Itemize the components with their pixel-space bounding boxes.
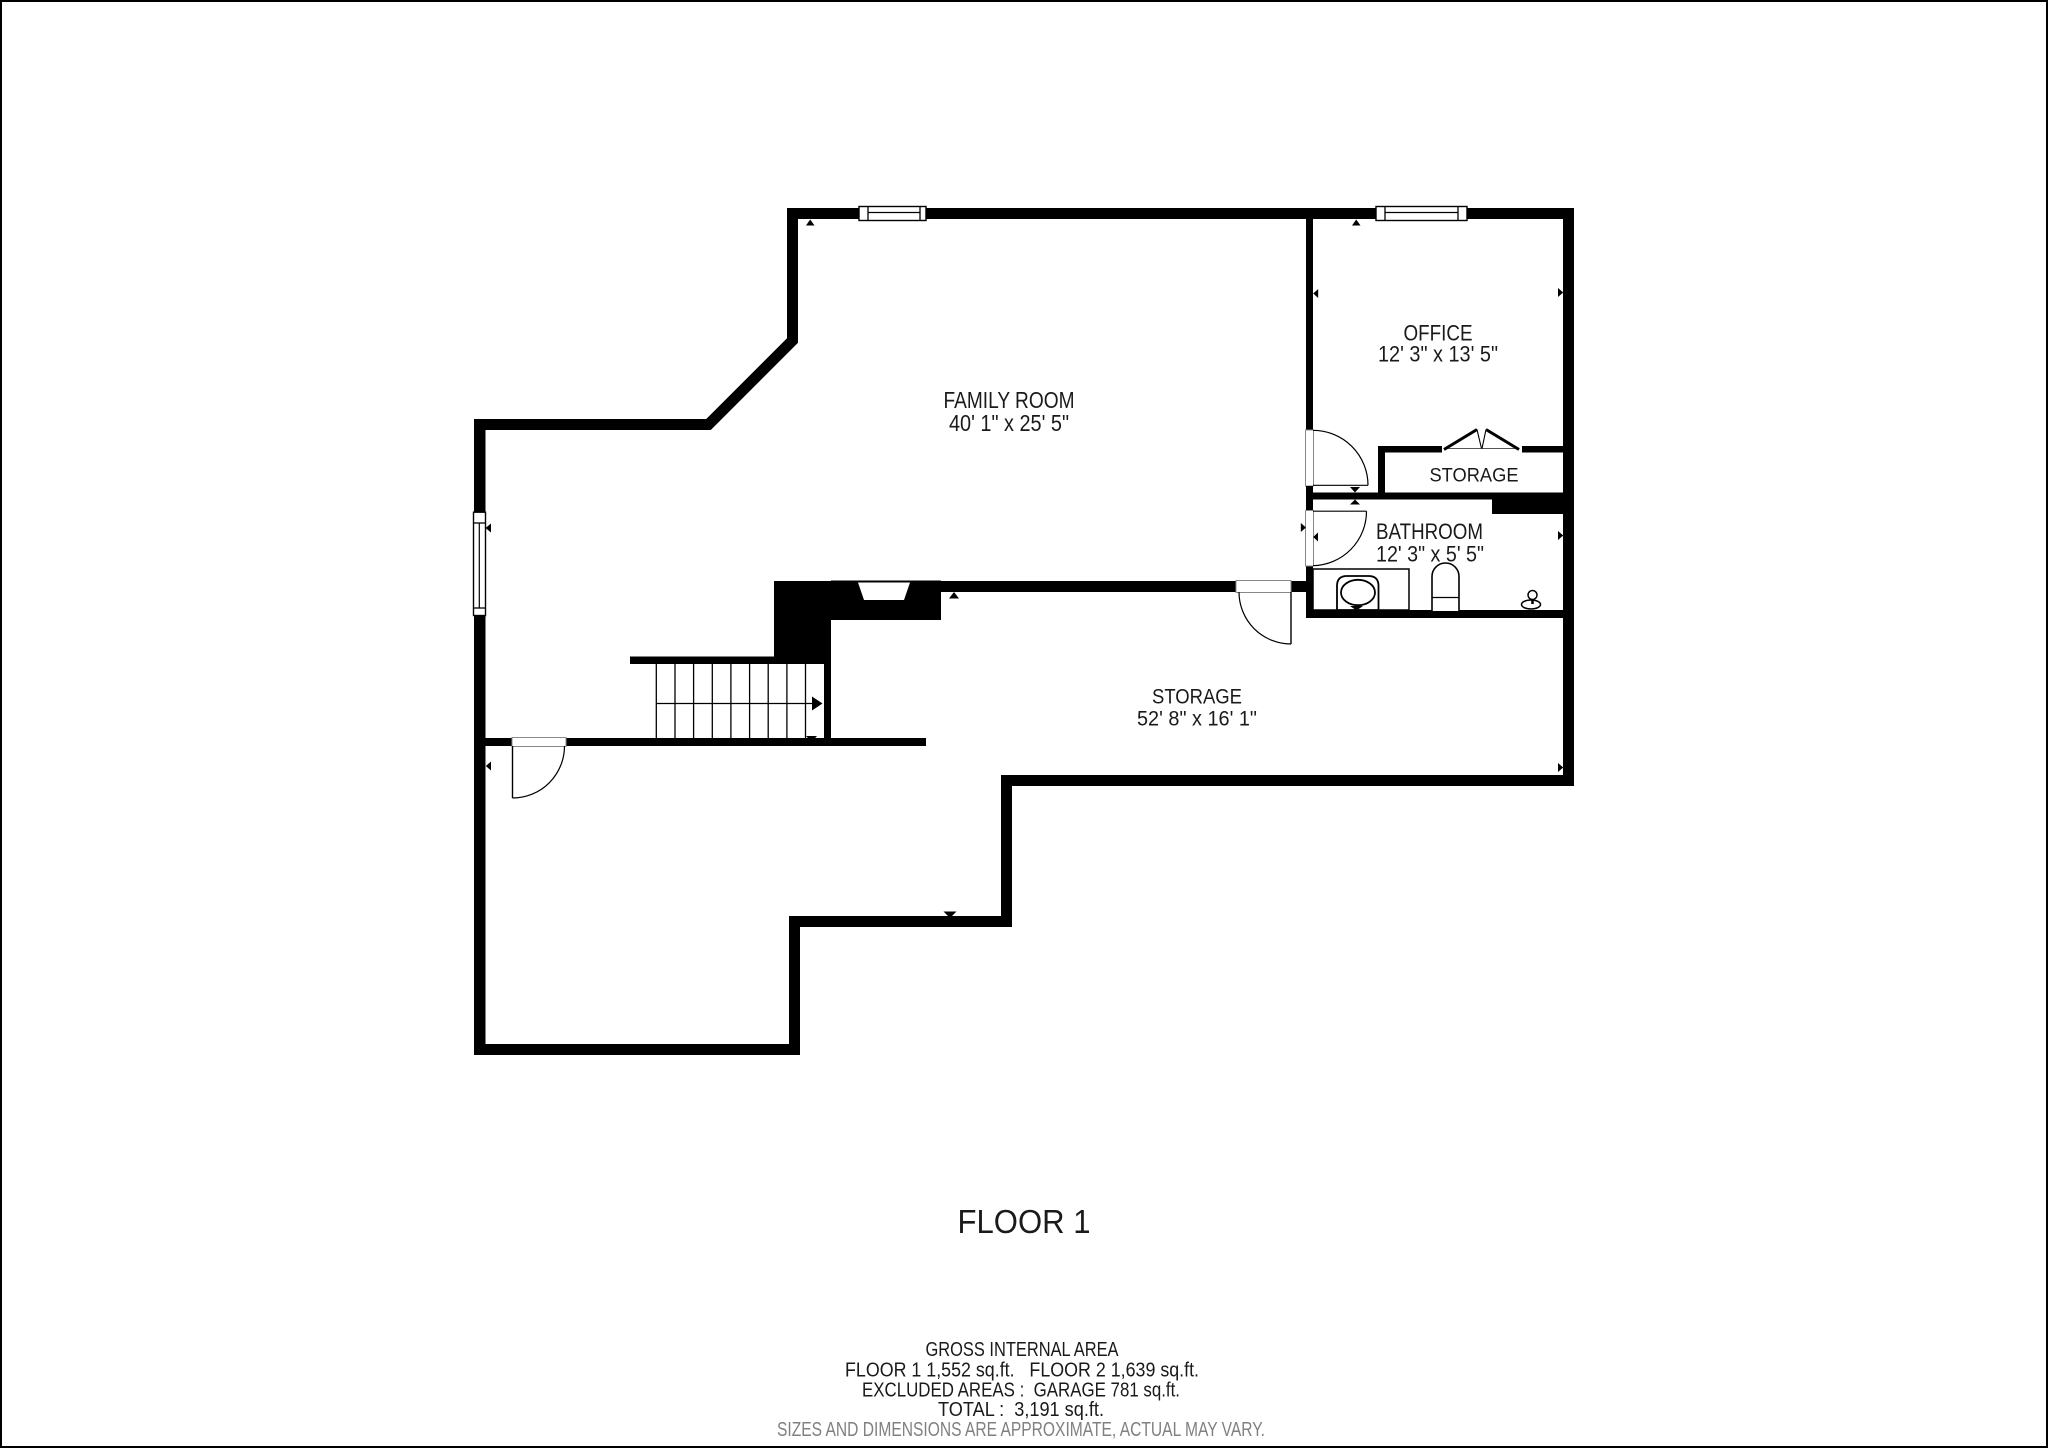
svg-text:40' 1" x 25' 5": 40' 1" x 25' 5" bbox=[949, 410, 1069, 436]
svg-text:STORAGE: STORAGE bbox=[1430, 466, 1519, 487]
svg-text:12' 3" x 13' 5": 12' 3" x 13' 5" bbox=[1378, 342, 1498, 367]
svg-text:BATHROOM: BATHROOM bbox=[1376, 519, 1483, 544]
svg-text:FLOOR 1: FLOOR 1 bbox=[958, 1203, 1091, 1240]
svg-text:STORAGE: STORAGE bbox=[1152, 685, 1242, 709]
svg-text:12' 3" x 5' 5": 12' 3" x 5' 5" bbox=[1376, 542, 1484, 567]
svg-text:52' 8" x 16' 1": 52' 8" x 16' 1" bbox=[1137, 707, 1257, 731]
svg-text:SIZES AND DIMENSIONS ARE APPRO: SIZES AND DIMENSIONS ARE APPROXIMATE, AC… bbox=[777, 1418, 1265, 1441]
